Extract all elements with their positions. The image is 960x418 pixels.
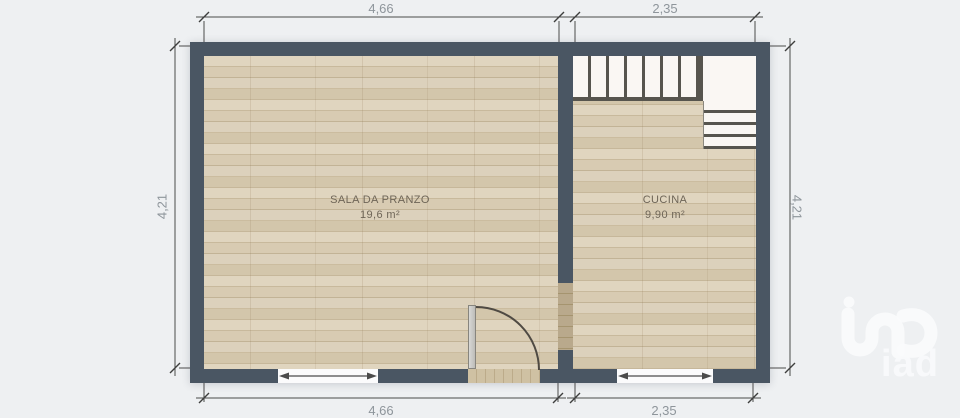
dimension-line-top-left bbox=[196, 17, 567, 42]
window-opening-sala bbox=[278, 369, 378, 383]
iad-logo: iad bbox=[830, 280, 960, 415]
dimension-bottom-right-label: 2,35 bbox=[614, 403, 714, 418]
window-opening-cucina bbox=[617, 369, 713, 383]
dimension-top-left-label: 4,66 bbox=[331, 1, 431, 16]
dimension-tick bbox=[199, 393, 563, 403]
stairs-landing bbox=[699, 56, 756, 101]
room-label-sala: SALA DA PRANZO 19,6 m² bbox=[280, 193, 480, 223]
room-name: CUCINA bbox=[595, 193, 735, 208]
room-area: 9,90 m² bbox=[595, 208, 735, 223]
dimension-left-label: 4,21 bbox=[155, 157, 170, 257]
stairs-lower-run bbox=[703, 101, 756, 149]
dimension-line-right bbox=[770, 38, 790, 376]
dimension-right-label: 4,21 bbox=[790, 158, 805, 258]
stairs-upper-run bbox=[573, 56, 699, 101]
room-area: 19,6 m² bbox=[280, 208, 480, 223]
dimension-bottom-left-label: 4,66 bbox=[331, 403, 431, 418]
dimension-tick bbox=[170, 41, 180, 373]
iad-logo-text: iad bbox=[870, 343, 950, 386]
dimension-tick bbox=[570, 393, 758, 403]
doorway-passage bbox=[558, 283, 573, 350]
floorplan-canvas: SALA DA PRANZO 19,6 m² CUCINA 9,90 m² 4,… bbox=[0, 0, 960, 415]
dimension-line-top-right bbox=[567, 17, 763, 42]
door-threshold bbox=[468, 369, 540, 383]
door-leaf bbox=[468, 305, 476, 369]
dimension-line-bottom-right bbox=[567, 383, 761, 402]
room-name: SALA DA PRANZO bbox=[280, 193, 480, 208]
room-label-cucina: CUCINA 9,90 m² bbox=[595, 193, 735, 223]
dimension-line-left bbox=[175, 38, 190, 376]
dimension-line-bottom-left bbox=[196, 383, 566, 402]
dimension-top-right-label: 2,35 bbox=[615, 1, 715, 16]
